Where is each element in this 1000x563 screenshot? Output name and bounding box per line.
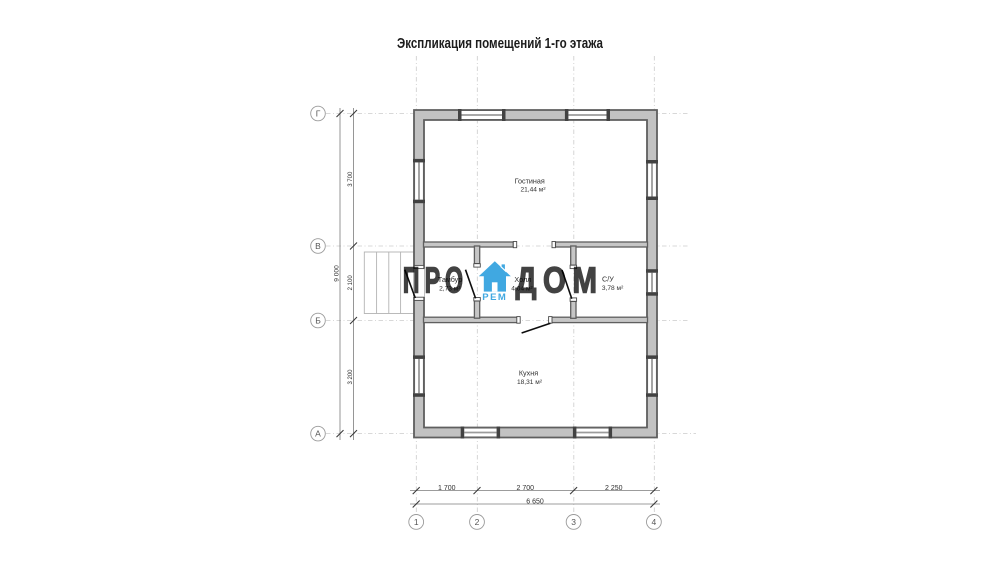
svg-text:2: 2	[475, 517, 480, 527]
svg-text:ПРО: ПРО	[403, 260, 469, 301]
svg-text:21,44 м²: 21,44 м²	[520, 186, 546, 193]
svg-text:Гостиная: Гостиная	[515, 177, 545, 186]
svg-text:РЕМ: РЕМ	[482, 292, 507, 303]
svg-text:3 700: 3 700	[348, 171, 354, 187]
svg-text:2 700: 2 700	[517, 485, 535, 492]
svg-text:Кухня: Кухня	[519, 368, 538, 377]
svg-text:1: 1	[414, 517, 419, 527]
svg-text:18,31 м²: 18,31 м²	[517, 379, 543, 386]
svg-text:2 250: 2 250	[605, 485, 623, 492]
svg-text:С/У: С/У	[602, 275, 614, 284]
svg-text:6 650: 6 650	[526, 498, 544, 505]
svg-text:Экспликация помещений 1-го эта: Экспликация помещений 1-го этажа	[397, 36, 604, 52]
svg-text:Г: Г	[316, 109, 321, 119]
svg-text:4: 4	[652, 517, 657, 527]
svg-text:А: А	[315, 429, 321, 439]
svg-text:3: 3	[571, 517, 576, 527]
svg-text:3,78 м²: 3,78 м²	[602, 285, 624, 292]
svg-text:ДОМ: ДОМ	[516, 260, 604, 301]
svg-text:3 200: 3 200	[348, 369, 354, 385]
svg-text:Б: Б	[315, 316, 321, 326]
svg-text:2 100: 2 100	[348, 275, 354, 291]
svg-text:1 700: 1 700	[438, 485, 456, 492]
svg-text:9 000: 9 000	[333, 265, 340, 282]
svg-text:В: В	[315, 241, 321, 251]
